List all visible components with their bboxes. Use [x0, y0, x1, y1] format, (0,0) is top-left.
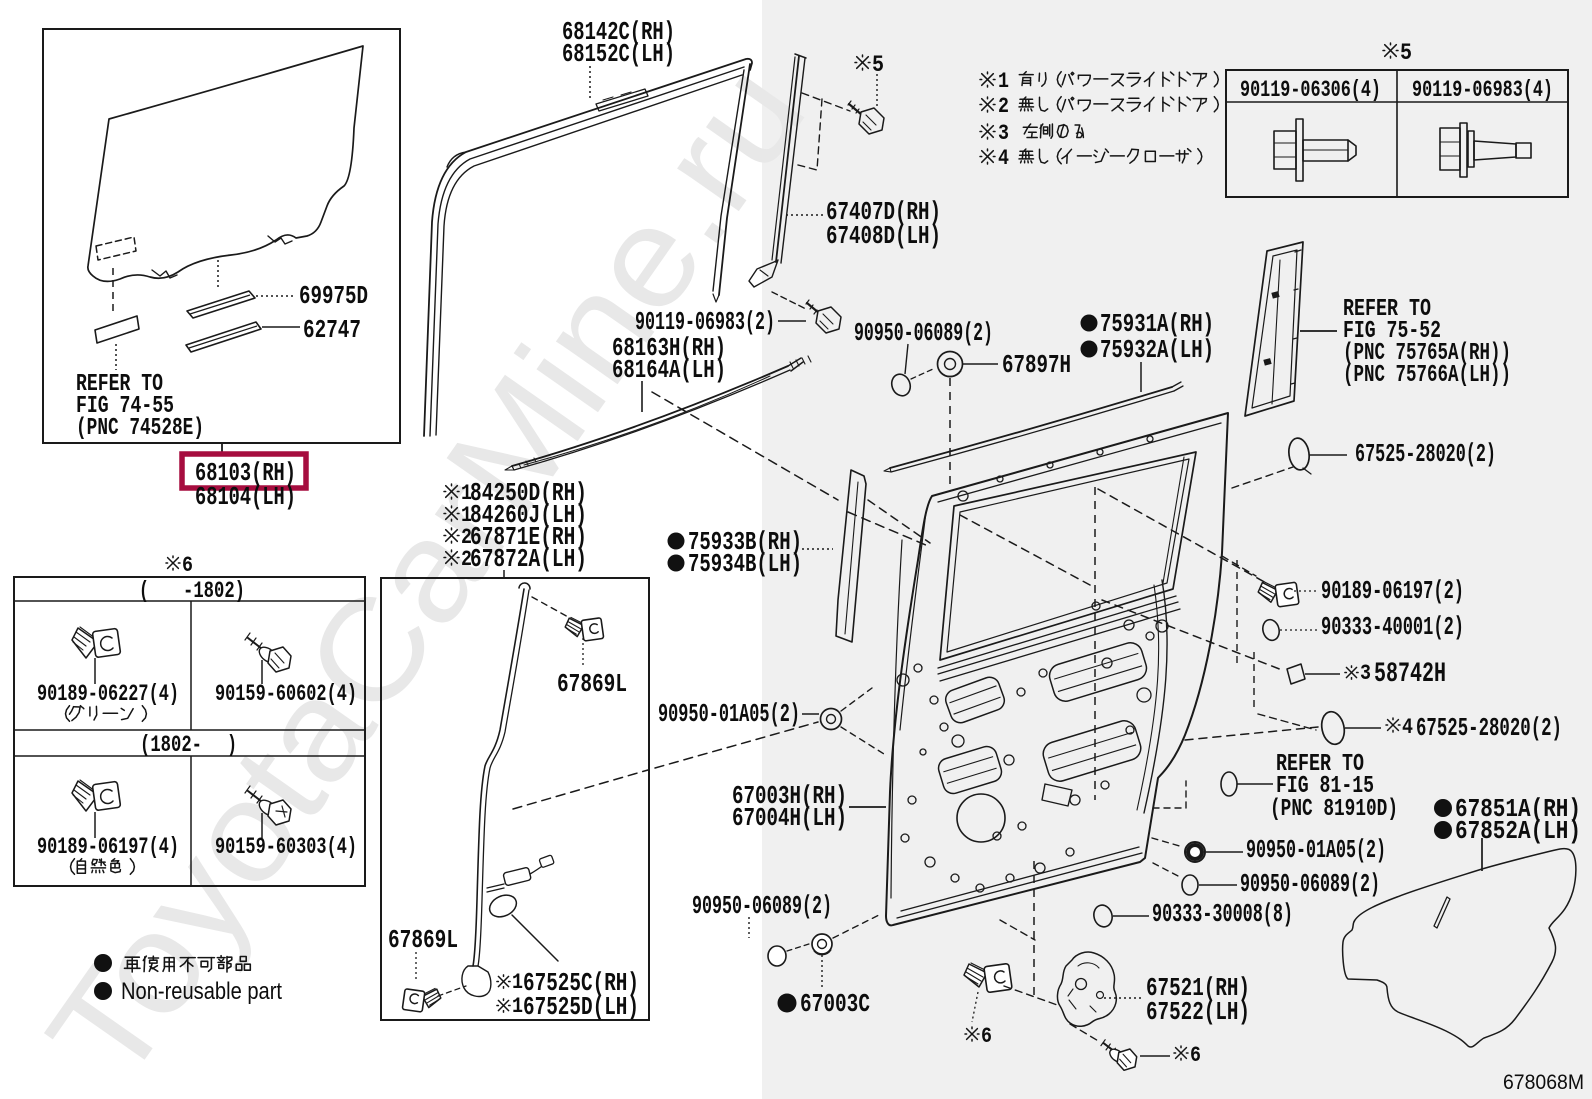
- svg-text:5: 5: [1400, 40, 1412, 66]
- svg-text:(1802-: (1802-: [140, 732, 202, 758]
- svg-text:678068M: 678068M: [1503, 1070, 1584, 1094]
- svg-text:67003C: 67003C: [800, 990, 870, 1019]
- svg-text:58742H: 58742H: [1374, 659, 1446, 690]
- svg-text:67852A(LH): 67852A(LH): [1455, 817, 1581, 846]
- svg-text:(PNC 81910D): (PNC 81910D): [1270, 796, 1398, 823]
- svg-text:90950-06089(2): 90950-06089(2): [854, 319, 993, 348]
- svg-text:4: 4: [1402, 715, 1413, 740]
- svg-text:90333-40001(2): 90333-40001(2): [1321, 613, 1464, 642]
- svg-text:6: 6: [1190, 1043, 1201, 1068]
- svg-text:2: 2: [998, 94, 1009, 119]
- svg-text:68104(LH): 68104(LH): [195, 483, 296, 512]
- svg-text:90950-01A05(2): 90950-01A05(2): [658, 700, 800, 729]
- svg-text:90189-06197(2): 90189-06197(2): [1321, 577, 1464, 606]
- svg-text:67897H: 67897H: [1002, 351, 1071, 380]
- svg-text:67872A(LH): 67872A(LH): [470, 545, 587, 574]
- svg-text:90950-06089(2): 90950-06089(2): [1240, 870, 1380, 899]
- svg-text:6: 6: [981, 1024, 992, 1049]
- svg-text:90333-30008(8): 90333-30008(8): [1152, 900, 1293, 929]
- svg-text:90189-06197(4): 90189-06197(4): [37, 834, 179, 860]
- svg-text:3: 3: [1360, 661, 1371, 686]
- svg-text:67525D(LH): 67525D(LH): [523, 993, 639, 1022]
- svg-text:67869L: 67869L: [388, 926, 458, 955]
- svg-text:75932A(LH): 75932A(LH): [1100, 336, 1214, 365]
- svg-text:67522(LH): 67522(LH): [1146, 998, 1250, 1027]
- svg-text:90119-06306(4): 90119-06306(4): [1240, 77, 1381, 103]
- svg-text:67525-28020(2): 67525-28020(2): [1416, 714, 1562, 743]
- svg-text:Non-reusable part: Non-reusable part: [121, 978, 282, 1005]
- svg-text:68152C(LH): 68152C(LH): [562, 40, 675, 69]
- svg-text:62747: 62747: [303, 316, 361, 345]
- svg-text:(PNC 75766A(LH)): (PNC 75766A(LH)): [1343, 362, 1511, 389]
- svg-text:67525-28020(2): 67525-28020(2): [1355, 440, 1496, 469]
- svg-text:67869L: 67869L: [557, 670, 627, 699]
- svg-text:90119-06983(2): 90119-06983(2): [635, 308, 775, 337]
- svg-text:90950-06089(2): 90950-06089(2): [692, 892, 832, 921]
- svg-text:90159-60602(4): 90159-60602(4): [215, 681, 357, 707]
- svg-text:69975D: 69975D: [299, 282, 368, 311]
- svg-text:1: 1: [512, 970, 523, 995]
- svg-text:90189-06227(4): 90189-06227(4): [37, 681, 179, 707]
- svg-text:1: 1: [998, 69, 1009, 94]
- svg-text:90119-06983(4): 90119-06983(4): [1412, 77, 1553, 103]
- svg-text:67004H(LH): 67004H(LH): [732, 804, 847, 833]
- svg-text:6: 6: [182, 553, 193, 578]
- svg-text:90950-01A05(2): 90950-01A05(2): [1246, 836, 1386, 865]
- svg-text:(: (: [139, 578, 149, 604]
- svg-text:1: 1: [512, 994, 523, 1019]
- svg-text:90159-60303(4): 90159-60303(4): [215, 834, 357, 860]
- svg-text:68164A(LH): 68164A(LH): [612, 356, 726, 385]
- svg-text:67408D(LH): 67408D(LH): [826, 222, 941, 251]
- svg-text:3: 3: [998, 121, 1009, 146]
- svg-text:-1802): -1802): [183, 578, 245, 604]
- svg-text:75934B(LH): 75934B(LH): [688, 550, 802, 579]
- svg-text:): ): [227, 732, 237, 758]
- svg-text:(PNC 74528E): (PNC 74528E): [76, 415, 204, 442]
- svg-text:4: 4: [998, 146, 1009, 171]
- svg-text:5: 5: [872, 52, 884, 78]
- svg-text:75931A(RH): 75931A(RH): [1100, 310, 1214, 339]
